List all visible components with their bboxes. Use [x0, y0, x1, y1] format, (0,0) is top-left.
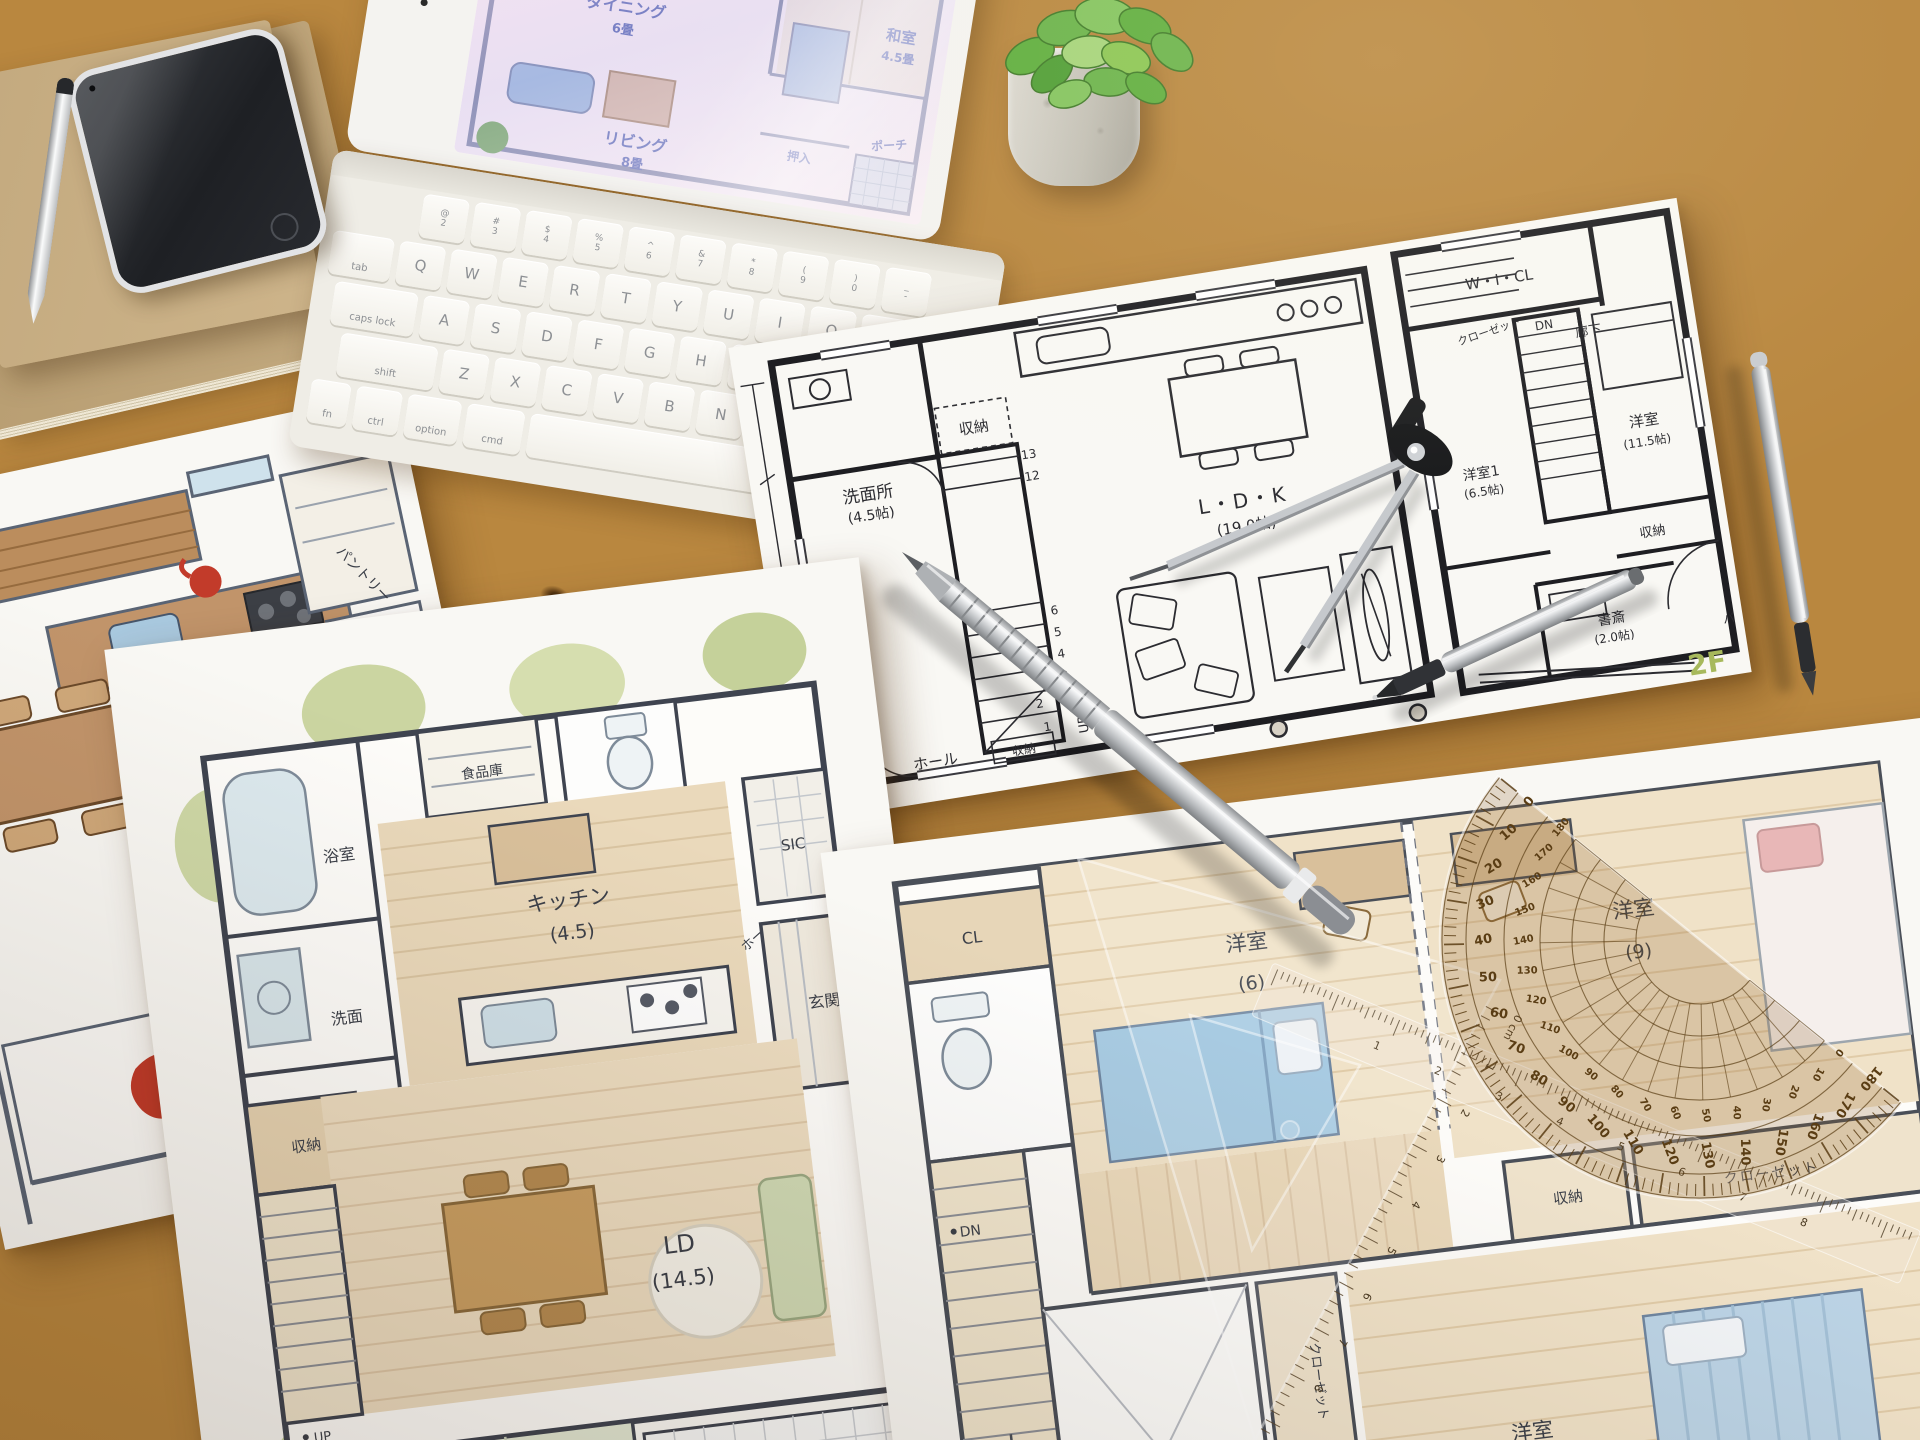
- svg-text:30: 30: [1759, 1097, 1772, 1113]
- key-option: option: [402, 394, 462, 446]
- key-tab: tab: [327, 230, 395, 283]
- svg-text:8: 8: [1311, 1382, 1326, 1394]
- rug: [603, 71, 675, 127]
- key-capslock: caps lock: [329, 281, 419, 338]
- svg-text:4: 4: [1056, 646, 1066, 661]
- key-h: H: [675, 335, 727, 386]
- key-8: * 8: [726, 242, 778, 293]
- punch-hole: [1409, 704, 1427, 722]
- key-f: F: [572, 319, 624, 370]
- punch-hole: [1270, 719, 1288, 737]
- window: [188, 456, 273, 497]
- key-9: ( 9: [777, 250, 829, 301]
- svg-text:50: 50: [1479, 970, 1497, 985]
- key-q: Q: [394, 240, 446, 291]
- genkan-label: 玄関: [807, 990, 841, 1013]
- key-e: E: [497, 257, 549, 308]
- yoshitsu-label: 洋室: [1628, 409, 1660, 431]
- key-y: Y: [651, 281, 703, 332]
- key-x: X: [489, 357, 541, 408]
- ld-table: [442, 1186, 606, 1312]
- svg-text:2: 2: [1035, 696, 1045, 711]
- key-r: R: [548, 265, 600, 316]
- key-d: D: [521, 311, 573, 362]
- svg-text:130: 130: [1517, 965, 1538, 976]
- porch-label: ポーチ: [871, 137, 908, 154]
- svg-text:6: 6: [1360, 1291, 1375, 1303]
- yoshitsu-size-label: (11.5帖): [1622, 430, 1672, 452]
- key-cmd: cmd: [462, 403, 526, 456]
- key-2: @ 2: [418, 193, 470, 244]
- key-s: S: [469, 303, 521, 354]
- key-a: A: [418, 295, 470, 346]
- svg-text:12: 12: [1023, 468, 1040, 484]
- sic-label: SIC: [780, 834, 806, 855]
- key-shift: shift: [335, 332, 439, 391]
- key-3: # 3: [469, 202, 521, 253]
- yoshitsu1-label: 洋室1: [1462, 462, 1501, 485]
- svg-text:4: 4: [1409, 1199, 1424, 1211]
- bath-label: 浴室: [322, 844, 356, 867]
- key-ctrl: ctrl: [351, 385, 403, 436]
- dn-label: DN: [1534, 317, 1554, 334]
- ldk-size-label: (19.0帖): [1216, 513, 1278, 540]
- cl-label: CL: [961, 927, 983, 948]
- senmen-label: 洗面: [330, 1006, 364, 1029]
- balcony-label: バ: [1722, 611, 1736, 627]
- study-label: 書斎: [1596, 608, 1626, 629]
- storage-label: 収納: [958, 416, 990, 438]
- key-u: U: [702, 289, 754, 340]
- key-6: ^ 6: [623, 226, 675, 277]
- svg-text:3: 3: [1433, 1153, 1448, 1165]
- dining-size-label: 6畳: [611, 21, 635, 39]
- key-fn: fn: [306, 378, 352, 428]
- key-z: Z: [438, 349, 490, 400]
- key-v: V: [592, 373, 644, 424]
- svg-text:3: 3: [1060, 668, 1070, 683]
- svg-text:7: 7: [1335, 1336, 1350, 1348]
- svg-text:13: 13: [1020, 446, 1037, 462]
- kitchen-sink: [481, 998, 558, 1048]
- svg-text:6: 6: [1050, 603, 1060, 618]
- key-c: C: [541, 365, 593, 416]
- key-w: W: [446, 249, 498, 300]
- washstand: [238, 948, 311, 1047]
- phone-screen-glare: [71, 30, 326, 292]
- svg-text:60: 60: [1489, 1005, 1509, 1023]
- key-: _ -: [880, 267, 932, 318]
- key-4: $ 4: [521, 210, 573, 261]
- wicl-label: W・I・CL: [1464, 265, 1535, 294]
- storage-label-2f: 収納: [1639, 523, 1667, 542]
- desk-scene-photo: パントリー 洗面所 LDK (23.1): [0, 0, 1920, 1440]
- up-label: UP: [313, 1429, 332, 1440]
- futon: [783, 23, 850, 103]
- key-5: % 5: [572, 218, 624, 269]
- washroom-size-label: (4.5帖): [847, 504, 896, 527]
- key-g: G: [623, 327, 675, 378]
- dn-label: DN: [959, 1222, 982, 1240]
- tablet-camera-icon: [420, 0, 428, 7]
- key-b: B: [643, 381, 695, 432]
- porch-tiles: [848, 155, 915, 214]
- succulent-plant: [960, 0, 1220, 116]
- key-t: T: [600, 273, 652, 324]
- shuno-label: 収納: [290, 1135, 322, 1157]
- living-size-label: 8畳: [620, 155, 644, 173]
- svg-text:5: 5: [1384, 1245, 1399, 1257]
- svg-text:40: 40: [1730, 1106, 1741, 1120]
- key-0: ) 0: [829, 259, 881, 310]
- svg-text:5: 5: [1053, 624, 1063, 639]
- ld-label: LD: [662, 1228, 697, 1260]
- bathtub: [221, 767, 320, 918]
- up-label: UP: [1075, 714, 1093, 734]
- key-7: & 7: [675, 234, 727, 285]
- svg-text:140: 140: [1737, 1138, 1752, 1165]
